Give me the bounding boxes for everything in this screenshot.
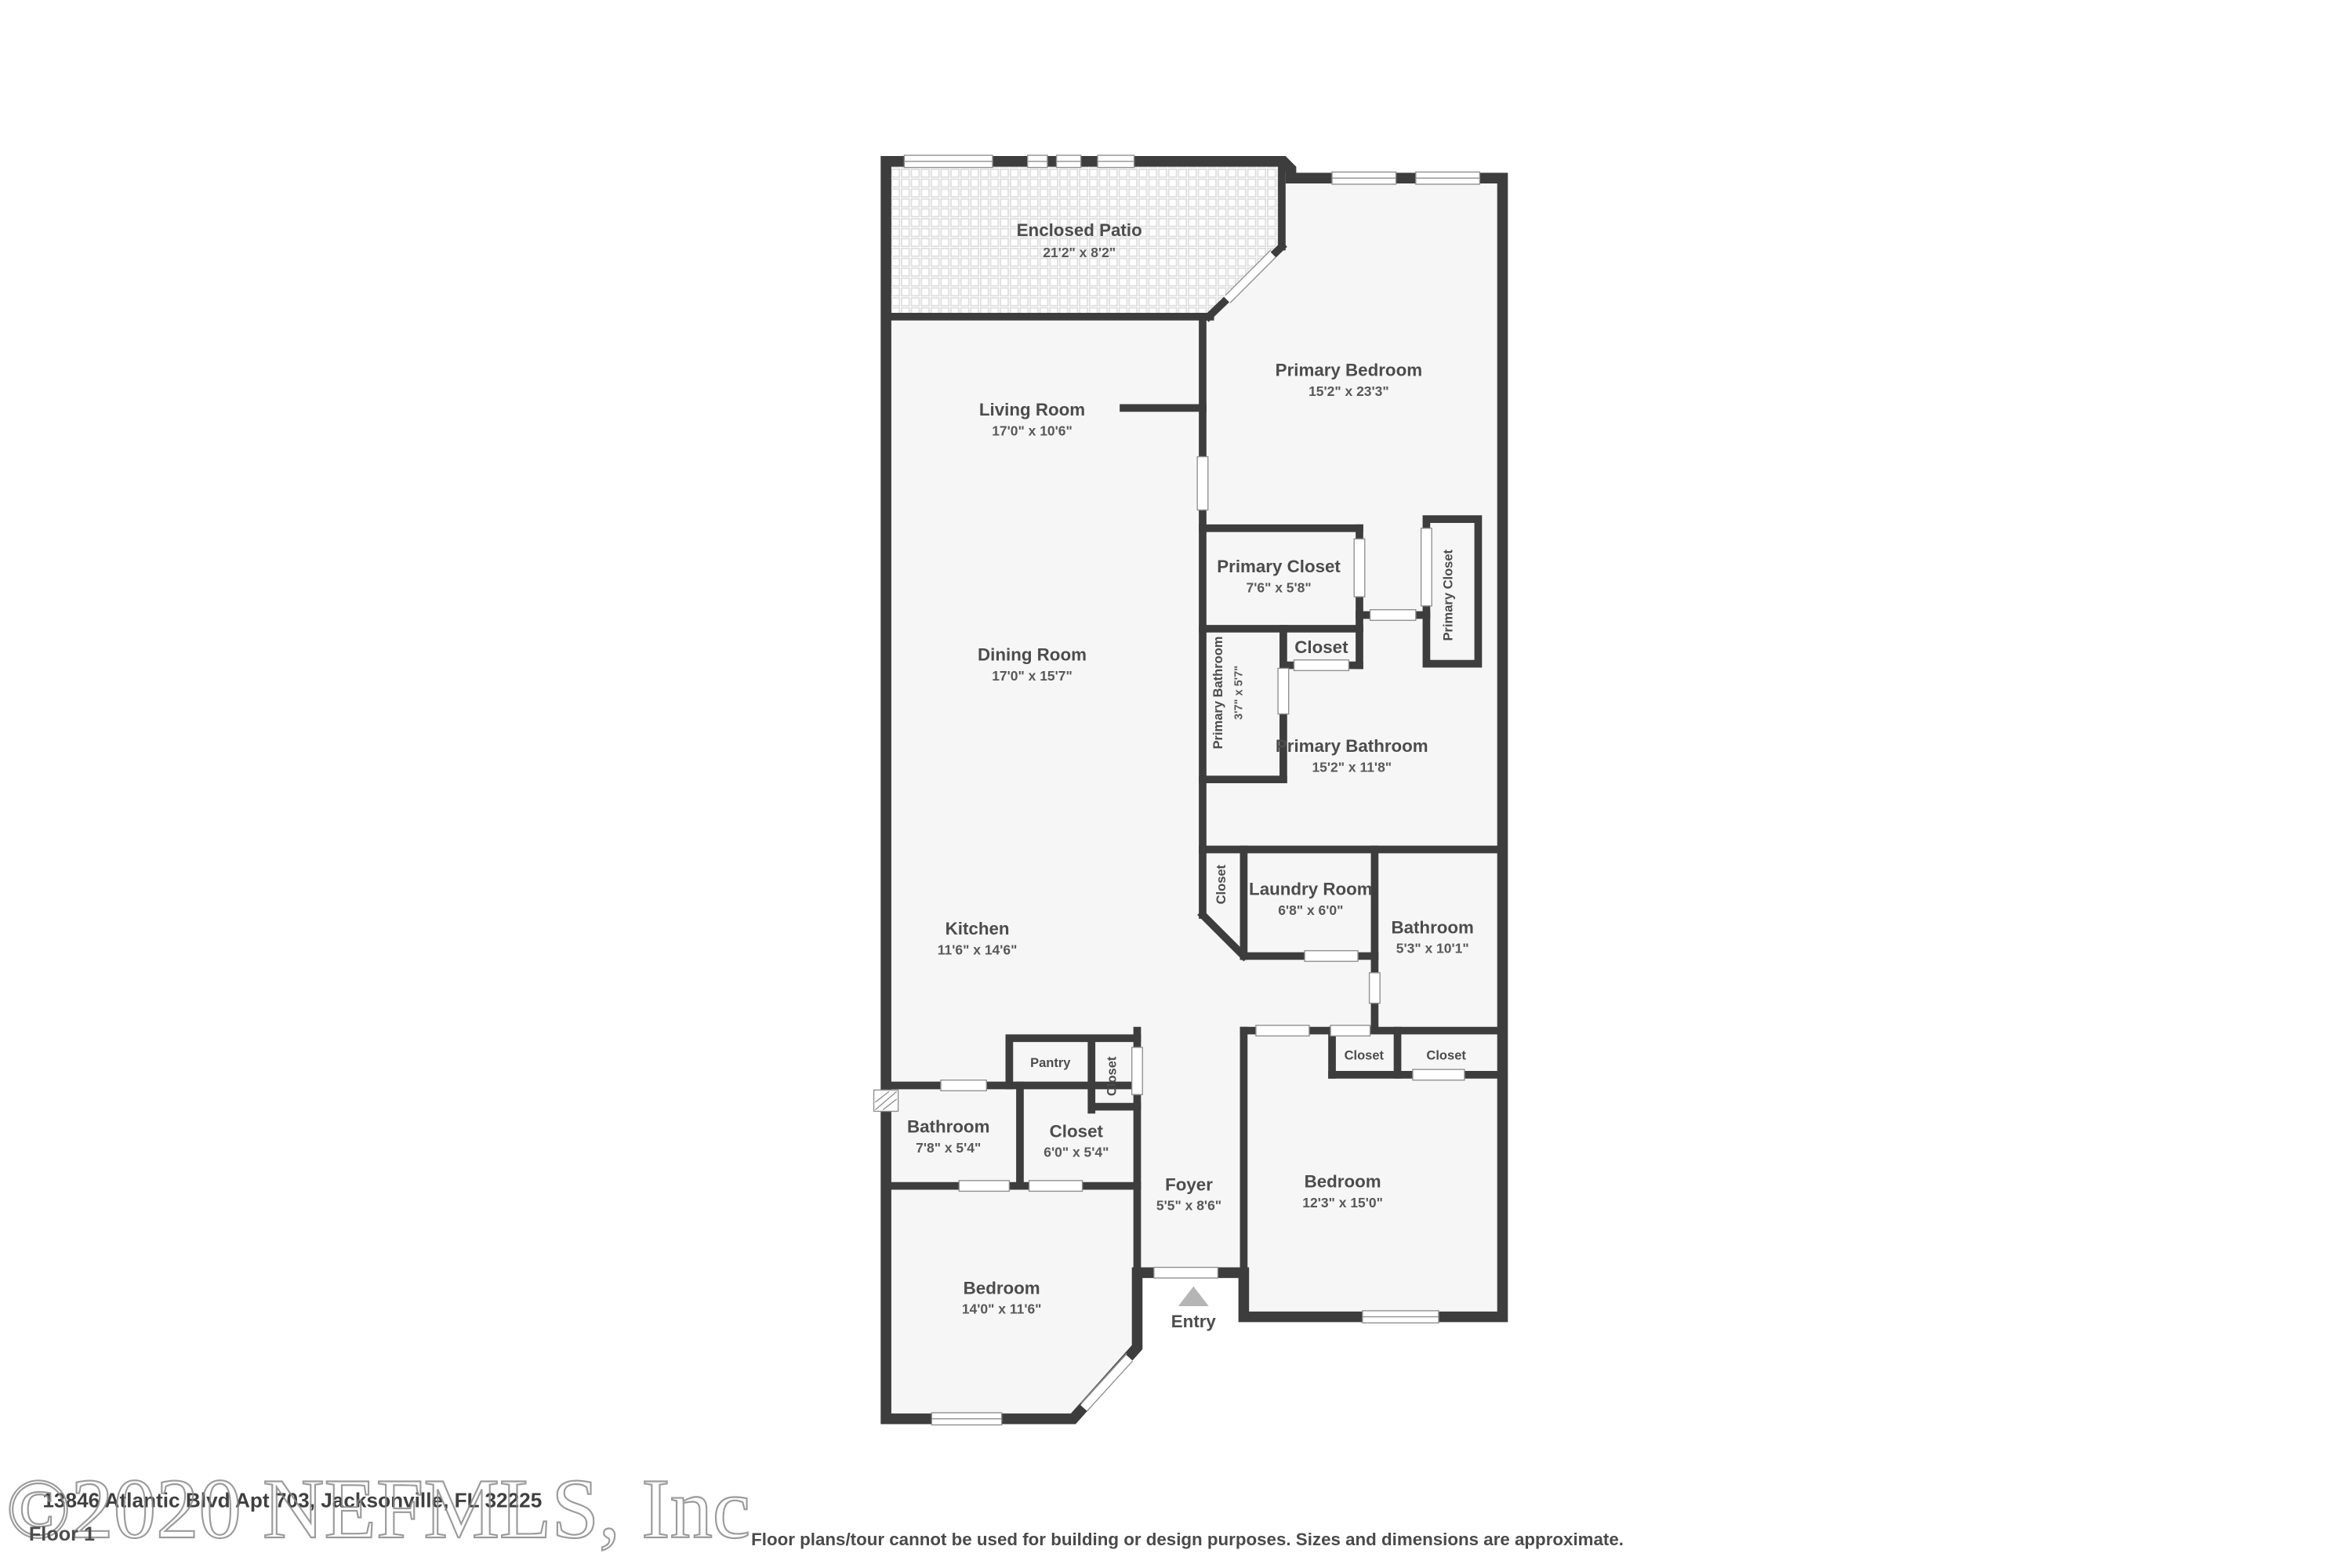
floorplan-page: Enclosed Patio 21'2" x 8'2" Primary Bedr… [0, 0, 2352, 1568]
room-label-primary-bathroom: Primary Bathroom [1276, 736, 1428, 756]
room-dims-kitchen: 11'6" x 14'6" [938, 942, 1018, 957]
room-label-bedroom-2: Bedroom [964, 1278, 1040, 1298]
room-label-bedroom: Bedroom [1305, 1172, 1381, 1192]
room-label-primary-closet-2: Primary Closet [1441, 549, 1455, 641]
room-label-dining-room: Dining Room [978, 645, 1087, 665]
room-label-primary-bathroom-small: Primary Bathroom [1211, 637, 1225, 750]
room-dims-primary-bedroom: 15'2" x 23'3" [1308, 383, 1389, 399]
primary-bedroom-window-2 [1416, 172, 1480, 184]
room-dims-bathroom-2: 7'8" x 5'4" [916, 1140, 981, 1156]
room-label-closet-c: Closet [1105, 1056, 1119, 1096]
room-label-bathroom-2: Bathroom [907, 1117, 989, 1137]
entry-marker: Entry [1171, 1287, 1217, 1331]
room-dims-bedroom: 12'3" x 15'0" [1302, 1195, 1383, 1210]
bottom-bedroom-window [931, 1413, 1001, 1425]
room-label-bathroom: Bathroom [1391, 917, 1473, 937]
room-dims-primary-bathroom-small: 3'7" x 5'7" [1232, 666, 1245, 720]
room-label-laundry-room: Laundry Room [1249, 880, 1373, 899]
room-dims-primary-closet: 7'6" x 5'8" [1246, 579, 1311, 595]
patio-window-4 [1098, 155, 1134, 168]
room-label-closet-e: Closet [1426, 1048, 1466, 1062]
room-dims-closet-f: 6'0" x 5'4" [1044, 1145, 1109, 1160]
room-label-kitchen: Kitchen [946, 919, 1010, 938]
room-dims-bedroom-2: 14'0" x 11'6" [962, 1301, 1042, 1317]
watermark-text: ©2020 NEFMLS, Inc [6, 1461, 750, 1556]
room-dims-enclosed-patio: 21'2" x 8'2" [1043, 245, 1116, 260]
room-dims-bathroom: 5'3" x 10'1" [1396, 941, 1469, 956]
patio-window-2 [1028, 155, 1047, 168]
room-label-foyer: Foyer [1165, 1174, 1213, 1194]
room-dims-primary-bathroom: 15'2" x 11'8" [1312, 759, 1392, 775]
kitchen-hatched-window [874, 1090, 898, 1111]
room-label-closet-d: Closet [1345, 1048, 1385, 1062]
patio-tile-pattern [889, 165, 1280, 317]
footer: 13846 Atlantic Blvd Apt 703, Jacksonvill… [6, 1461, 1624, 1556]
room-label-primary-bedroom: Primary Bedroom [1276, 361, 1422, 380]
room-label-closet-f: Closet [1050, 1121, 1104, 1141]
entry-arrow-icon [1178, 1287, 1209, 1306]
patio-window-3 [1057, 155, 1081, 168]
patio-window-1 [904, 155, 993, 168]
room-label-closet-b: Closet [1214, 864, 1229, 904]
floor-label: Floor 1 [29, 1523, 95, 1545]
entry-label: Entry [1171, 1312, 1217, 1331]
room-dims-laundry-room: 6'8" x 6'0" [1278, 902, 1343, 918]
room-label-enclosed-patio: Enclosed Patio [1017, 220, 1142, 240]
room-dims-foyer: 5'5" x 8'6" [1156, 1198, 1221, 1214]
house-floor [886, 162, 1502, 1419]
room-label-closet-a: Closet [1294, 637, 1348, 657]
room-dims-dining-room: 17'0" x 15'7" [992, 668, 1073, 684]
primary-bedroom-window [1332, 172, 1396, 184]
room-label-living-room: Living Room [979, 400, 1085, 419]
room-label-primary-closet: Primary Closet [1217, 557, 1341, 576]
right-bedroom-window [1363, 1311, 1439, 1323]
floorplan-canvas: Enclosed Patio 21'2" x 8'2" Primary Bedr… [0, 0, 2352, 1568]
room-dims-living-room: 17'0" x 10'6" [992, 423, 1073, 438]
disclaimer-text: Floor plans/tour cannot be used for buil… [751, 1530, 1624, 1549]
room-label-pantry: Pantry [1030, 1056, 1071, 1070]
